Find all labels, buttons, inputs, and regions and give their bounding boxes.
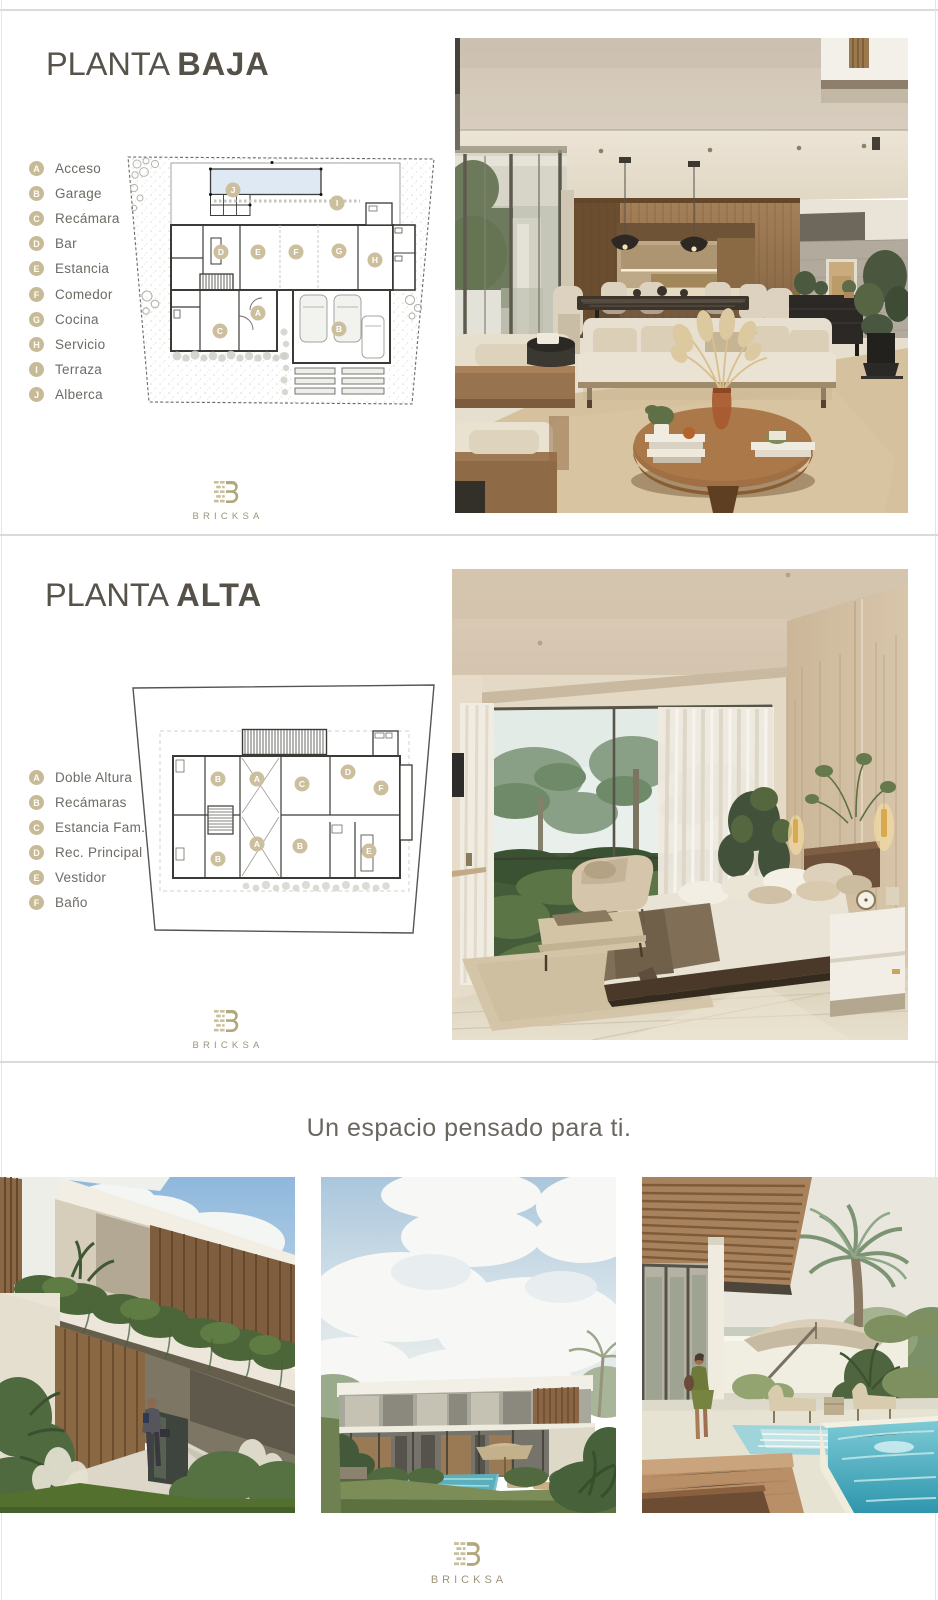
svg-text:A: A <box>254 774 260 784</box>
svg-text:B: B <box>297 841 303 851</box>
svg-text:C: C <box>299 779 305 789</box>
svg-text:D: D <box>345 767 351 777</box>
svg-text:I: I <box>336 198 338 208</box>
svg-text:A: A <box>255 308 261 318</box>
svg-text:J: J <box>231 185 236 195</box>
svg-text:B: B <box>336 324 342 334</box>
svg-text:E: E <box>255 247 261 257</box>
svg-text:B: B <box>215 854 221 864</box>
svg-text:A: A <box>254 839 260 849</box>
svg-text:B: B <box>215 774 221 784</box>
svg-text:D: D <box>218 247 224 257</box>
svg-text:F: F <box>293 247 298 257</box>
svg-text:G: G <box>336 246 343 256</box>
svg-text:H: H <box>372 255 378 265</box>
svg-text:E: E <box>366 846 372 856</box>
svg-text:C: C <box>217 326 223 336</box>
svg-text:F: F <box>378 783 383 793</box>
